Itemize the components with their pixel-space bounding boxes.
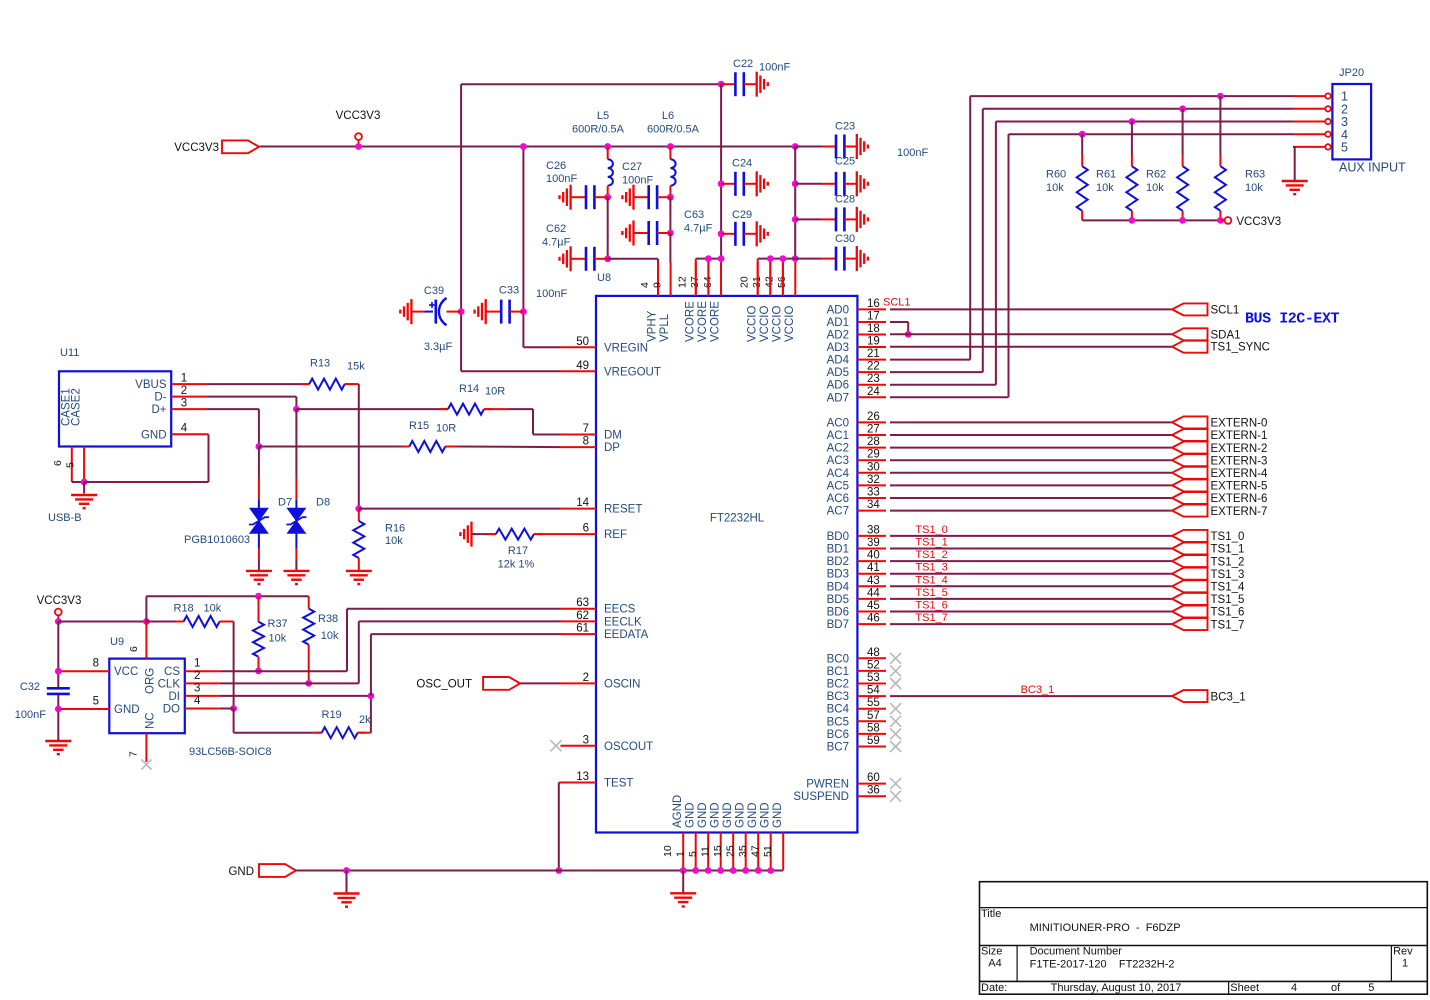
svg-text:47: 47 <box>750 845 762 857</box>
svg-text:10k: 10k <box>1146 182 1164 194</box>
svg-text:VCC3V3: VCC3V3 <box>37 595 82 607</box>
svg-text:TS1_SYNC: TS1_SYNC <box>1211 342 1270 354</box>
svg-text:1: 1 <box>194 658 200 670</box>
svg-text:TS1_6: TS1_6 <box>915 600 947 612</box>
svg-text:CS: CS <box>164 666 180 678</box>
svg-text:D+: D+ <box>151 404 166 416</box>
svg-text:38: 38 <box>867 524 880 536</box>
svg-text:Date:: Date: <box>981 982 1007 994</box>
svg-text:BC3_1: BC3_1 <box>1211 691 1246 703</box>
svg-text:GND: GND <box>141 430 167 442</box>
svg-text:18: 18 <box>867 323 880 335</box>
svg-text:6: 6 <box>52 460 64 466</box>
svg-text:R61: R61 <box>1096 169 1116 181</box>
svg-text:Sheet: Sheet <box>1230 982 1259 994</box>
svg-text:R63: R63 <box>1245 169 1265 181</box>
svg-text:5: 5 <box>1368 982 1374 994</box>
svg-text:BC7: BC7 <box>827 742 849 754</box>
svg-text:62: 62 <box>576 610 589 622</box>
svg-text:VCORE: VCORE <box>684 301 696 342</box>
svg-text:AD3: AD3 <box>827 342 849 354</box>
svg-text:C28: C28 <box>835 194 855 206</box>
svg-text:Size: Size <box>981 946 1002 958</box>
svg-text:AC3: AC3 <box>827 455 849 467</box>
svg-text:11: 11 <box>700 846 712 857</box>
svg-text:7: 7 <box>128 751 140 757</box>
svg-text:1: 1 <box>181 373 187 385</box>
svg-text:58: 58 <box>867 722 880 734</box>
svg-text:GND: GND <box>759 802 771 828</box>
svg-text:15: 15 <box>712 845 724 857</box>
svg-text:43: 43 <box>867 575 880 587</box>
svg-text:16: 16 <box>867 298 880 310</box>
svg-text:36: 36 <box>867 785 880 797</box>
svg-text:19: 19 <box>867 336 880 348</box>
svg-text:SCL1: SCL1 <box>883 297 911 309</box>
svg-text:10k: 10k <box>321 630 339 642</box>
svg-text:GND: GND <box>772 802 784 828</box>
svg-text:600R/0.5A: 600R/0.5A <box>572 124 625 136</box>
svg-text:R16: R16 <box>385 523 405 535</box>
svg-text:BC3_1: BC3_1 <box>1021 684 1055 696</box>
svg-text:VCC3V3: VCC3V3 <box>1236 216 1281 228</box>
svg-text:AD7: AD7 <box>827 392 849 404</box>
svg-text:100nF: 100nF <box>536 288 567 300</box>
svg-text:44: 44 <box>867 587 880 599</box>
svg-text:GND: GND <box>734 802 746 828</box>
svg-text:2: 2 <box>181 385 187 397</box>
svg-text:REF: REF <box>604 529 627 541</box>
svg-text:SUSPEND: SUSPEND <box>793 791 849 803</box>
svg-text:C39: C39 <box>424 285 444 297</box>
svg-text:23: 23 <box>867 373 880 385</box>
svg-text:10k: 10k <box>385 535 403 547</box>
svg-text:25: 25 <box>725 845 737 857</box>
svg-text:AC7: AC7 <box>827 506 849 518</box>
svg-text:VPHY: VPHY <box>647 310 659 342</box>
svg-text:50: 50 <box>576 336 589 348</box>
svg-text:TS1_6: TS1_6 <box>1211 607 1245 619</box>
svg-text:17: 17 <box>867 310 880 322</box>
svg-text:ORG: ORG <box>145 668 157 694</box>
svg-text:8: 8 <box>93 658 99 670</box>
svg-text:C32: C32 <box>20 681 40 693</box>
svg-text:EXTERN-0: EXTERN-0 <box>1211 418 1268 430</box>
svg-text:BC3: BC3 <box>827 691 849 703</box>
svg-text:R37: R37 <box>268 618 288 630</box>
svg-text:C25: C25 <box>835 156 855 168</box>
svg-text:BUS I2C-EXT: BUS I2C-EXT <box>1245 311 1340 328</box>
svg-text:VCCIO: VCCIO <box>784 306 796 342</box>
svg-text:GND: GND <box>114 704 140 716</box>
svg-text:BC0: BC0 <box>827 653 849 665</box>
svg-text:TS1_7: TS1_7 <box>1211 619 1245 631</box>
svg-text:DI: DI <box>169 691 181 703</box>
svg-text:C27: C27 <box>622 161 642 173</box>
svg-text:of: of <box>1331 982 1341 994</box>
svg-text:AC4: AC4 <box>827 468 850 480</box>
svg-text:Rev: Rev <box>1393 946 1413 958</box>
svg-text:100nF: 100nF <box>759 62 790 74</box>
svg-text:AD5: AD5 <box>827 367 849 379</box>
svg-text:1: 1 <box>675 851 687 857</box>
svg-text:VCC: VCC <box>114 666 138 678</box>
svg-text:AC5: AC5 <box>827 480 849 492</box>
svg-text:5: 5 <box>687 851 699 857</box>
svg-text:TS1_2: TS1_2 <box>1211 556 1245 568</box>
svg-text:45: 45 <box>867 600 880 612</box>
svg-text:1: 1 <box>1402 958 1408 970</box>
svg-text:10R: 10R <box>485 386 505 398</box>
svg-text:48: 48 <box>867 647 880 659</box>
svg-text:BC2: BC2 <box>827 679 849 691</box>
svg-text:BD4: BD4 <box>827 581 850 593</box>
svg-text:EXTERN-2: EXTERN-2 <box>1211 443 1268 455</box>
svg-text:C23: C23 <box>835 121 855 133</box>
svg-text:JP20: JP20 <box>1339 67 1364 79</box>
svg-text:OSCIN: OSCIN <box>604 678 640 690</box>
svg-text:OSC_OUT: OSC_OUT <box>416 679 472 691</box>
svg-text:R19: R19 <box>322 709 342 721</box>
svg-text:24: 24 <box>867 386 880 398</box>
svg-text:8: 8 <box>583 436 589 448</box>
svg-text:C29: C29 <box>732 209 752 221</box>
svg-text:VPLL: VPLL <box>659 313 671 342</box>
svg-text:U8: U8 <box>597 272 611 284</box>
svg-text:AGND: AGND <box>672 795 684 828</box>
svg-text:10R: 10R <box>436 423 456 435</box>
svg-text:BD7: BD7 <box>827 619 849 631</box>
svg-text:41: 41 <box>867 562 880 574</box>
svg-text:TS1_5: TS1_5 <box>1211 594 1245 606</box>
svg-text:D8: D8 <box>316 497 330 509</box>
svg-text:12: 12 <box>677 276 689 288</box>
svg-text:BC4: BC4 <box>827 704 850 716</box>
svg-text:SDA1: SDA1 <box>1211 329 1241 341</box>
svg-text:VCC3V3: VCC3V3 <box>336 110 381 122</box>
svg-text:TS1_0: TS1_0 <box>1211 531 1245 543</box>
svg-text:EXTERN-4: EXTERN-4 <box>1211 468 1268 480</box>
svg-text:3: 3 <box>181 398 187 410</box>
svg-text:2k: 2k <box>359 714 371 726</box>
svg-text:54: 54 <box>867 685 880 697</box>
svg-text:3: 3 <box>194 682 200 694</box>
svg-text:VREGOUT: VREGOUT <box>604 366 661 378</box>
svg-text:PGB1010603: PGB1010603 <box>184 534 250 546</box>
svg-text:R62: R62 <box>1146 169 1166 181</box>
svg-text:DO: DO <box>163 704 180 716</box>
svg-text:F1TE-2017-120 FT2232H-2: F1TE-2017-120 FT2232H-2 <box>1030 958 1175 970</box>
svg-text:600R/0.5A: 600R/0.5A <box>647 124 700 136</box>
svg-text:28: 28 <box>867 436 880 448</box>
svg-text:59: 59 <box>867 735 880 747</box>
svg-text:VCC3V3: VCC3V3 <box>174 142 219 154</box>
svg-text:10k: 10k <box>1245 182 1263 194</box>
svg-text:4: 4 <box>194 695 201 707</box>
svg-text:R38: R38 <box>318 613 338 625</box>
svg-text:R18: R18 <box>174 603 194 615</box>
svg-text:OSCOUT: OSCOUT <box>604 741 653 753</box>
svg-text:C26: C26 <box>546 160 566 172</box>
svg-text:C24: C24 <box>732 158 752 170</box>
svg-text:57: 57 <box>867 710 880 722</box>
svg-text:AD0: AD0 <box>827 304 849 316</box>
svg-text:AD6: AD6 <box>827 380 849 392</box>
svg-text:GND: GND <box>722 802 734 828</box>
svg-text:U9: U9 <box>110 636 124 648</box>
svg-text:TS1_1: TS1_1 <box>1211 544 1245 556</box>
svg-text:BD6: BD6 <box>827 607 849 619</box>
svg-text:R15: R15 <box>409 420 429 432</box>
svg-text:TS1_2: TS1_2 <box>915 549 947 561</box>
svg-text:55: 55 <box>867 697 880 709</box>
svg-text:EXTERN-3: EXTERN-3 <box>1211 455 1268 467</box>
svg-text:5: 5 <box>93 696 99 708</box>
svg-text:R17: R17 <box>508 545 528 557</box>
svg-text:100nF: 100nF <box>15 709 46 721</box>
svg-text:VCORE: VCORE <box>697 301 709 342</box>
svg-text:33: 33 <box>867 487 880 499</box>
svg-text:Document Number: Document Number <box>1030 946 1123 958</box>
svg-text:TS1_4: TS1_4 <box>1211 582 1245 594</box>
svg-text:C22: C22 <box>733 58 753 70</box>
svg-text:26: 26 <box>867 411 880 423</box>
svg-text:32: 32 <box>867 474 880 486</box>
svg-text:CLK: CLK <box>158 678 181 690</box>
svg-text:D7: D7 <box>278 497 292 509</box>
svg-text:TS1_1: TS1_1 <box>915 537 947 549</box>
svg-text:AC6: AC6 <box>827 493 849 505</box>
svg-text:100nF: 100nF <box>546 173 577 185</box>
svg-text:100nF: 100nF <box>897 147 928 159</box>
svg-text:SCL1: SCL1 <box>1211 304 1240 316</box>
svg-text:DP: DP <box>604 442 620 454</box>
svg-text:AC2: AC2 <box>827 443 849 455</box>
svg-text:35: 35 <box>737 845 749 857</box>
svg-text:4: 4 <box>1291 982 1297 994</box>
svg-text:L6: L6 <box>662 110 674 122</box>
svg-text:EXTERN-1: EXTERN-1 <box>1211 430 1268 442</box>
svg-text:3.3µF: 3.3µF <box>424 341 453 353</box>
svg-text:Title: Title <box>981 908 1001 920</box>
svg-text:GND: GND <box>684 802 696 828</box>
svg-text:TEST: TEST <box>604 778 633 790</box>
svg-text:AD1: AD1 <box>827 317 849 329</box>
svg-text:C33: C33 <box>499 285 519 297</box>
svg-text:L5: L5 <box>597 110 609 122</box>
svg-text:TS1_3: TS1_3 <box>915 562 947 574</box>
svg-text:52: 52 <box>867 659 880 671</box>
svg-text:EECS: EECS <box>604 604 636 616</box>
svg-text:BC1: BC1 <box>827 666 849 678</box>
svg-text:C30: C30 <box>835 233 855 245</box>
svg-text:BC6: BC6 <box>827 729 849 741</box>
svg-text:30: 30 <box>867 461 880 473</box>
svg-text:D-: D- <box>154 392 166 404</box>
svg-text:20: 20 <box>739 276 751 288</box>
svg-text:2: 2 <box>583 672 589 684</box>
svg-text:EECLK: EECLK <box>604 616 642 628</box>
svg-text:NC: NC <box>145 712 157 729</box>
svg-text:DM: DM <box>604 430 622 442</box>
svg-text:VCCIO: VCCIO <box>759 306 771 342</box>
svg-text:10k: 10k <box>204 603 222 615</box>
svg-text:34: 34 <box>867 499 880 511</box>
svg-text:2: 2 <box>194 670 200 682</box>
svg-text:TS1_4: TS1_4 <box>915 574 947 586</box>
svg-text:12k 1%: 12k 1% <box>498 559 535 571</box>
svg-text:BD3: BD3 <box>827 569 849 581</box>
svg-text:C63: C63 <box>684 209 704 221</box>
svg-text:60: 60 <box>867 772 880 784</box>
svg-text:15k: 15k <box>347 361 365 373</box>
svg-text:13: 13 <box>576 771 589 783</box>
svg-text:6: 6 <box>128 646 140 652</box>
svg-text:U11: U11 <box>60 347 79 359</box>
svg-text:CASE2: CASE2 <box>71 388 83 426</box>
svg-text:AUX INPUT: AUX INPUT <box>1339 161 1406 175</box>
svg-text:TS1_3: TS1_3 <box>1211 569 1245 581</box>
svg-text:39: 39 <box>867 537 880 549</box>
svg-text:5: 5 <box>1341 141 1348 155</box>
svg-text:BD5: BD5 <box>827 594 849 606</box>
svg-text:FT2232HL: FT2232HL <box>710 513 765 525</box>
svg-text:51: 51 <box>762 845 774 857</box>
svg-text:BD1: BD1 <box>827 544 849 556</box>
svg-text:63: 63 <box>576 597 589 609</box>
svg-text:4.7µF: 4.7µF <box>542 237 571 249</box>
svg-text:A4: A4 <box>988 958 1001 970</box>
svg-text:R60: R60 <box>1046 169 1066 181</box>
svg-text:29: 29 <box>867 449 880 461</box>
svg-text:R13: R13 <box>310 358 330 370</box>
svg-text:53: 53 <box>867 672 880 684</box>
svg-text:EXTERN-5: EXTERN-5 <box>1211 481 1268 493</box>
svg-text:VCCIO: VCCIO <box>772 306 784 342</box>
svg-text:14: 14 <box>576 497 589 509</box>
svg-text:AD2: AD2 <box>827 330 849 342</box>
svg-text:10k: 10k <box>269 633 287 645</box>
svg-text:EXTERN-6: EXTERN-6 <box>1211 493 1268 505</box>
svg-text:46: 46 <box>867 613 880 625</box>
svg-text:Thursday, August 10, 2017: Thursday, August 10, 2017 <box>1051 982 1182 994</box>
svg-text:VCCIO: VCCIO <box>746 306 758 342</box>
svg-text:VBUS: VBUS <box>135 379 167 391</box>
svg-text:27: 27 <box>867 424 880 436</box>
svg-text:BD2: BD2 <box>827 556 849 568</box>
svg-text:MINITIOUNER-PRO - F6DZP: MINITIOUNER-PRO - F6DZP <box>1030 922 1181 934</box>
svg-text:GND: GND <box>709 802 721 828</box>
svg-text:100nF: 100nF <box>622 175 653 187</box>
svg-text:TS1_7: TS1_7 <box>915 612 947 624</box>
svg-text:TS1_5: TS1_5 <box>915 587 947 599</box>
svg-text:6: 6 <box>583 523 589 535</box>
svg-text:21: 21 <box>867 348 880 360</box>
svg-text:3: 3 <box>583 734 589 746</box>
svg-text:R14: R14 <box>459 383 479 395</box>
svg-text:10k: 10k <box>1096 182 1114 194</box>
svg-text:EXTERN-7: EXTERN-7 <box>1211 506 1268 518</box>
svg-text:4: 4 <box>181 423 188 435</box>
svg-text:C62: C62 <box>546 223 566 235</box>
svg-text:49: 49 <box>576 360 589 372</box>
svg-text:GND: GND <box>228 866 254 878</box>
svg-text:10k: 10k <box>1046 182 1064 194</box>
svg-text:BD0: BD0 <box>827 531 849 543</box>
svg-text:USB-B: USB-B <box>48 512 82 524</box>
svg-text:BC5: BC5 <box>827 716 849 728</box>
svg-text:4: 4 <box>639 282 651 288</box>
svg-text:AC1: AC1 <box>827 430 849 442</box>
svg-text:4.7µF: 4.7µF <box>684 223 713 235</box>
svg-text:22: 22 <box>867 361 880 373</box>
svg-text:40: 40 <box>867 550 880 562</box>
svg-text:RESET: RESET <box>604 504 642 516</box>
svg-text:EEDATA: EEDATA <box>604 629 649 641</box>
svg-text:61: 61 <box>576 623 589 635</box>
svg-text:GND: GND <box>747 802 759 828</box>
svg-text:5: 5 <box>65 462 77 468</box>
svg-text:10: 10 <box>662 845 674 857</box>
svg-text:TS1_0: TS1_0 <box>915 524 947 536</box>
svg-text:AC0: AC0 <box>827 417 849 429</box>
svg-text:VCORE: VCORE <box>710 301 722 342</box>
svg-text:GND: GND <box>697 802 709 828</box>
svg-text:AD4: AD4 <box>827 355 850 367</box>
svg-text:VREGIN: VREGIN <box>604 342 648 354</box>
svg-text:93LC56B-SOIC8: 93LC56B-SOIC8 <box>189 746 272 758</box>
svg-text:9: 9 <box>651 282 663 288</box>
svg-text:7: 7 <box>583 423 589 435</box>
svg-text:PWREN: PWREN <box>806 779 849 791</box>
